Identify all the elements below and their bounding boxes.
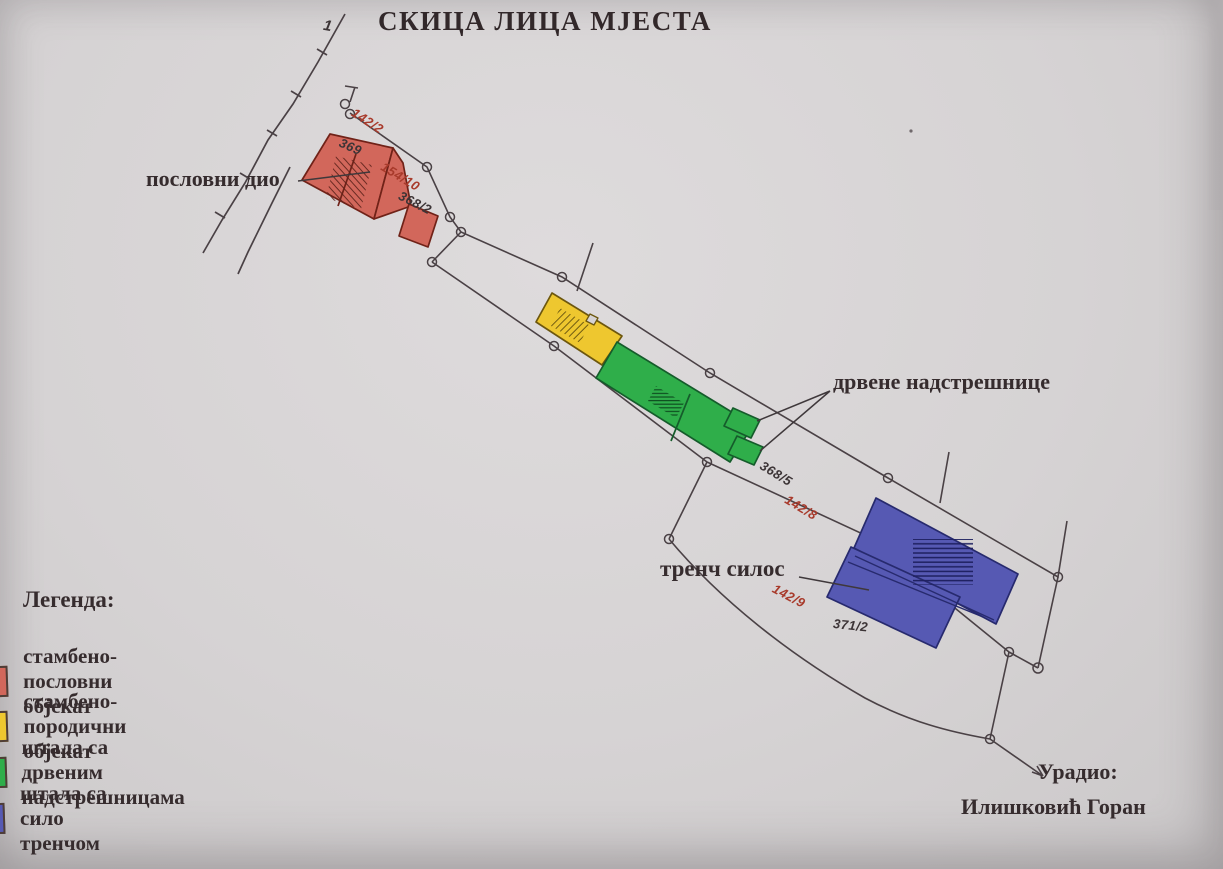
leader-canopies (757, 391, 830, 451)
legend-item-label: штала са сило тренчом (20, 781, 109, 856)
credit-label: Урадио: (1038, 759, 1118, 785)
label-business-part: пословни дио (146, 166, 280, 192)
credit-author: Илишковић Горан (961, 794, 1146, 820)
leader-lines (298, 172, 869, 590)
label-trench-silo: тренч силос (660, 556, 785, 582)
fence-spur (577, 243, 593, 291)
legend-item: штала са сило тренчом (0, 781, 109, 856)
legend-heading: Легенда: (23, 587, 115, 613)
blue-hatch (913, 539, 973, 585)
page-title: СКИЦА ЛИЦА МЈЕСТА (378, 6, 712, 37)
building-residential-business (302, 134, 438, 247)
legend-swatch-blue (0, 803, 6, 834)
site-sketch-page: СКИЦА ЛИЦА МЈЕСТА 1 пословни дио дрвене … (0, 0, 1223, 869)
label-wooden-canopies: дрвене надстрешнице (833, 369, 1050, 395)
road-tick (215, 212, 225, 218)
paper-edge-shadow (1207, 0, 1223, 210)
fence-spur (940, 452, 949, 503)
paper-speck (909, 129, 912, 132)
building-stable-green (596, 342, 763, 465)
